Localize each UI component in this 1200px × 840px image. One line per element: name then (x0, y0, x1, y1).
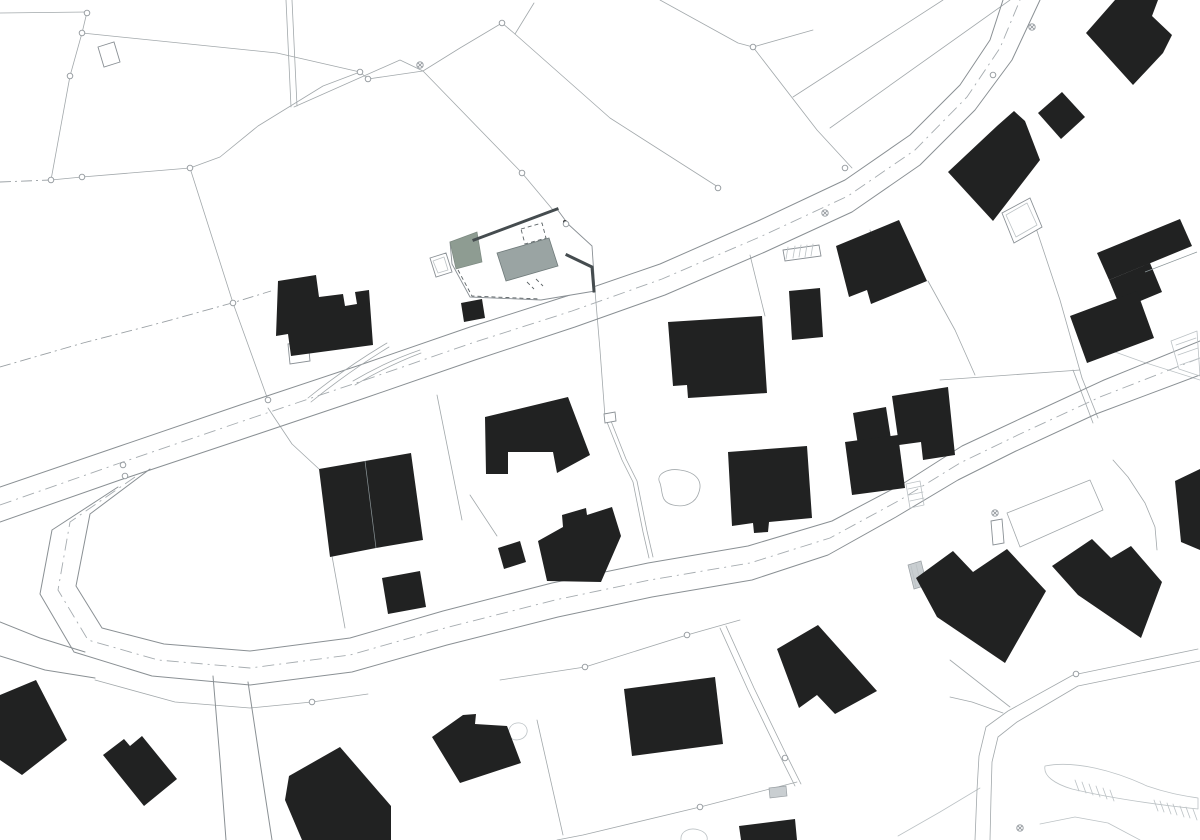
survey-point-marker (563, 221, 569, 227)
round-detail-s-house-2 (509, 723, 527, 740)
parcel-line (928, 281, 975, 375)
retaining-wall-2a (353, 350, 420, 381)
parcel-line (1007, 480, 1103, 547)
survey-point-marker (122, 473, 128, 479)
parking-tick (910, 498, 924, 501)
gate-on-boundary-outline (769, 786, 787, 798)
road-edge-lower (40, 375, 1200, 685)
site-plan-canvas (0, 0, 1200, 840)
parcel-line (950, 697, 1003, 713)
building-footprint-sw-house (103, 736, 177, 806)
street-branch-edge (248, 682, 272, 840)
footpath-edge (286, 0, 291, 107)
parcel-line (830, 0, 1010, 128)
survey-point-marker (48, 177, 54, 183)
parcel-line (595, 291, 605, 417)
parking-tick (1154, 800, 1158, 811)
parking-tick (1160, 801, 1164, 812)
survey-point-marker (499, 20, 505, 26)
parking-tick (1103, 788, 1107, 799)
building-footprint-mid-house-1 (668, 316, 767, 398)
building-footprint-c-house-3 (728, 446, 812, 533)
site-plan (0, 0, 1200, 840)
road-arm-edge (0, 622, 85, 652)
survey-point-marker (187, 165, 193, 171)
building-footprint-c-house-5 (845, 435, 905, 495)
pond-outline (659, 470, 700, 506)
parking-tick (908, 486, 922, 489)
survey-point-marker (842, 165, 848, 171)
building-footprint-s-house-4 (777, 625, 877, 714)
building-footprint-c-annex (498, 541, 526, 569)
survey-point-marker (519, 170, 525, 176)
street-branch-edge (213, 676, 226, 840)
parcel-line (1073, 370, 1093, 423)
footpath-edge (292, 0, 297, 106)
pool-outline-outer-outline (1002, 198, 1042, 243)
parking-tick (1167, 803, 1171, 814)
parcel-line (51, 12, 87, 180)
parking-tick (1110, 790, 1114, 801)
building-footprint-s-house-3 (624, 677, 723, 756)
survey-point-marker (265, 397, 271, 403)
survey-point-marker (782, 755, 788, 761)
parcel-line (470, 495, 497, 536)
parcel-line (294, 60, 423, 107)
parcel-line (1040, 817, 1140, 840)
parcel-line (537, 720, 563, 835)
survey-point-marker (990, 72, 996, 78)
parking-tick (1193, 809, 1197, 820)
footpath-edge (990, 661, 1200, 840)
parcel-line (750, 255, 765, 316)
parcel-line (502, 3, 534, 34)
building-footprint-e-edge-house (1175, 469, 1200, 550)
parking-strip-outline (783, 245, 821, 261)
parcel-line (360, 23, 502, 79)
survey-point-marker (67, 73, 73, 79)
parcel-line (500, 620, 740, 680)
boundary-box-top-outline (604, 412, 616, 423)
building-footprint-w-small-house (382, 571, 426, 614)
building-footprint-se-house-1 (916, 549, 1046, 663)
building-footprint-s-small-house (739, 819, 797, 840)
parcel-line (0, 12, 87, 13)
parcel-line (1113, 460, 1157, 550)
road-centerline-lower (58, 358, 1200, 668)
survey-point-marker (684, 632, 690, 638)
building-footprint-mid-small-rect (789, 288, 823, 340)
parcel-line (753, 47, 852, 168)
nw-shed-outline-outline (98, 42, 120, 67)
survey-point-marker (357, 69, 363, 75)
survey-point-marker (84, 10, 90, 16)
building-footprint-c-house-4 (892, 387, 955, 460)
planting-bed-se (1045, 764, 1198, 809)
building-footprint-s-house-2 (432, 714, 521, 783)
survey-point-marker (750, 44, 756, 50)
building-footprint-ne-house-1 (836, 220, 927, 304)
building-footprint-garage-near-site (461, 299, 485, 322)
boundary-dashdot-line (0, 180, 51, 182)
building-footprint-nw-house (276, 275, 373, 356)
parcel-line (1035, 225, 1082, 378)
building-footprint-c-house-1 (485, 397, 590, 474)
parcel-line (898, 788, 980, 836)
building-footprint-sw-corner-house (0, 680, 67, 775)
parcel-line (332, 556, 345, 628)
parcel-line (437, 395, 462, 520)
survey-point-marker (715, 185, 721, 191)
shelter-lower-road-outline (991, 519, 1004, 545)
building-footprint-se-house-2 (1052, 539, 1162, 638)
building-footprint-s-house-1 (285, 747, 391, 840)
parcel-line (515, 34, 718, 187)
survey-point-marker (365, 76, 371, 82)
building-footprint-ne-corner-house (1086, 0, 1172, 85)
parking-tick (1173, 804, 1177, 815)
survey-point-marker (79, 174, 85, 180)
survey-point-marker (1073, 671, 1079, 677)
parcel-line (95, 680, 368, 708)
project-terrace-outline (430, 253, 452, 277)
parcel-line (793, 0, 943, 97)
bush-outline (681, 829, 707, 840)
parcel-line (753, 30, 813, 47)
survey-point-marker (230, 300, 236, 306)
parcel-line (190, 168, 268, 400)
parcel-line (950, 660, 1010, 707)
survey-point-marker (697, 804, 703, 810)
parking-tick (1075, 780, 1079, 791)
parcel-line (940, 370, 1080, 380)
parcel-line (423, 71, 553, 210)
survey-point-marker (582, 664, 588, 670)
survey-point-marker (120, 462, 126, 468)
footpath-edge (975, 649, 1198, 840)
parking-tick (1096, 786, 1100, 797)
building-footprint-e-house-lower (1070, 291, 1154, 363)
parking-tick (1180, 358, 1200, 365)
parcel-line (268, 408, 319, 469)
parcel-line (51, 72, 360, 180)
road-arm-edge (0, 656, 95, 678)
building-footprint-ne-diamond (1038, 92, 1085, 139)
parcel-line (660, 0, 753, 47)
parking-tick (1186, 807, 1190, 818)
survey-point-marker (79, 30, 85, 36)
survey-point-marker (309, 699, 315, 705)
